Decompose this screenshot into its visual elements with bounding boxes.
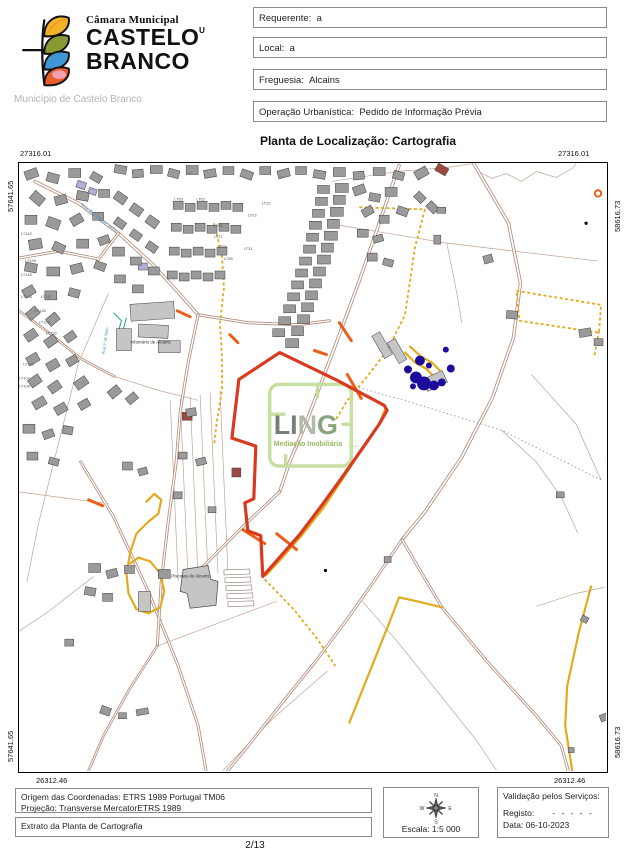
map-label: LT25 — [218, 244, 228, 249]
building — [158, 569, 170, 578]
building — [315, 197, 327, 205]
road — [19, 311, 115, 377]
coord-left-bottom: 57641.65 — [6, 731, 15, 762]
building — [286, 339, 299, 348]
building — [185, 203, 195, 211]
building — [145, 241, 159, 254]
coord-top-left: 27316.01 — [20, 149, 51, 158]
building — [556, 492, 564, 498]
building — [232, 468, 241, 477]
boundary-line — [531, 374, 601, 479]
building — [69, 213, 84, 227]
annotation-blob — [447, 365, 455, 373]
boundary-line — [502, 430, 579, 533]
building — [313, 170, 326, 180]
large-building — [180, 565, 218, 608]
building — [197, 201, 207, 209]
building — [129, 229, 143, 242]
orange-road-segment — [177, 311, 190, 317]
building — [84, 586, 96, 596]
map-label: LT22 — [262, 200, 271, 205]
map-label: LT63 — [174, 196, 184, 201]
ling-watermark: LINGMediação Imobiliária — [270, 384, 359, 466]
map-label: LT27 — [214, 234, 223, 239]
building — [599, 712, 606, 722]
building — [483, 254, 494, 264]
building — [324, 231, 337, 240]
map-svg: LINGMediação ImobiliáriaRua do Chafariz … — [19, 163, 606, 771]
building — [300, 257, 312, 265]
building — [284, 305, 296, 313]
building — [193, 247, 203, 255]
map-label: LT146 — [21, 294, 33, 299]
building — [89, 564, 101, 573]
building — [353, 171, 365, 180]
map-label: LT126 — [39, 320, 51, 325]
lot-strip — [228, 601, 254, 607]
data-line: Data: 06-10-2023 — [503, 820, 603, 831]
coord-right-top: 58616.73 — [613, 201, 622, 232]
coord-top-right: 27316.01 — [558, 149, 589, 158]
compass-scale-box: N S E W Escala: 1:5 000 — [383, 787, 479, 838]
yellow-road — [349, 597, 442, 722]
building — [327, 219, 339, 228]
annotation-blob — [429, 380, 439, 390]
field-operacao-value: Pedido de Informação Prévia — [359, 107, 482, 118]
svg-text:E: E — [448, 806, 452, 812]
building — [240, 169, 254, 181]
building — [385, 187, 397, 196]
org-title-line1: CASTELOᵁ — [86, 26, 205, 49]
building — [24, 168, 39, 181]
municipality-subtitle: Município de Castelo Branco — [14, 94, 142, 105]
building — [369, 193, 381, 203]
coord-bottom-right: 26312.46 — [554, 776, 585, 785]
map-label: LT152 — [21, 231, 32, 236]
validation-box: Validação pelos Serviços: Registo:- - - … — [497, 787, 609, 838]
annotation-blob — [438, 378, 446, 386]
building — [23, 328, 38, 342]
building — [117, 329, 132, 351]
road-core — [402, 540, 568, 771]
building — [231, 225, 241, 233]
building — [195, 223, 205, 231]
map-dot — [585, 222, 588, 225]
building — [384, 557, 391, 563]
orange-marker — [595, 190, 601, 196]
map-label: LT149 — [25, 258, 37, 263]
building — [379, 215, 389, 223]
building — [65, 639, 74, 646]
field-freguesia-value: Alcains — [309, 75, 340, 86]
page-title: Planta de Localização: Cartografia — [0, 134, 626, 148]
field-freguesia[interactable]: Freguesia: Alcains — [253, 69, 607, 90]
building — [114, 165, 127, 175]
building — [333, 195, 345, 204]
building — [302, 303, 314, 312]
road-core — [81, 462, 206, 770]
building — [333, 168, 345, 177]
building — [335, 183, 348, 192]
building — [298, 315, 310, 324]
building — [29, 190, 45, 206]
building — [313, 267, 325, 276]
map-label: Infantário de Alcains — [130, 340, 171, 345]
building — [273, 329, 285, 337]
building — [138, 324, 168, 338]
annotation-blob — [443, 347, 449, 353]
building — [130, 257, 141, 265]
annotation-blob — [410, 383, 416, 389]
map-label: LT35 — [224, 256, 234, 261]
boundary-line — [157, 601, 276, 646]
building — [129, 203, 144, 217]
building — [169, 247, 179, 255]
building — [195, 457, 206, 466]
building — [138, 467, 148, 476]
road-core — [402, 164, 520, 540]
field-local[interactable]: Local: a — [253, 37, 607, 58]
building — [77, 398, 90, 410]
map-label: LT23 — [248, 212, 258, 217]
building — [568, 748, 574, 753]
building — [173, 492, 182, 499]
building — [27, 452, 38, 460]
building — [132, 169, 144, 178]
building — [367, 253, 377, 261]
road — [402, 540, 568, 771]
field-local-value: a — [290, 43, 295, 54]
building — [113, 191, 128, 205]
building — [186, 407, 197, 417]
building — [178, 452, 187, 459]
building — [307, 233, 319, 241]
map-canvas[interactable]: LINGMediação ImobiliáriaRua do Chafariz … — [18, 162, 608, 773]
building — [69, 169, 81, 178]
validation-title: Validação pelos Serviços: — [503, 791, 603, 802]
building — [414, 191, 427, 204]
yellow-road — [565, 586, 591, 770]
building — [54, 194, 68, 206]
map-label: LT132 — [46, 331, 57, 336]
map-label: LT109 — [23, 362, 35, 367]
coord-left-top: 57641.65 — [6, 181, 15, 212]
building — [43, 334, 58, 348]
extract-box: Extrato da Planta de Cartografia — [15, 817, 372, 837]
building — [89, 171, 102, 183]
building — [103, 593, 113, 601]
map-label: LT31 — [244, 246, 254, 251]
building — [173, 201, 183, 209]
map-label: Rua do Chafariz Velho — [80, 202, 119, 234]
boundary-line — [190, 396, 198, 577]
yellow-dashed-track — [265, 579, 336, 666]
building — [594, 339, 603, 346]
building — [107, 385, 122, 400]
orange-road-segment — [314, 351, 326, 355]
page-number: 2/13 — [0, 840, 510, 851]
building — [70, 263, 84, 275]
building — [317, 185, 329, 193]
data-value: 06-10-2023 — [526, 820, 569, 830]
building — [23, 424, 35, 433]
extract-label: Extrato da Planta de Cartografia — [21, 821, 142, 831]
building — [321, 243, 333, 252]
building — [506, 310, 518, 319]
building — [100, 705, 112, 716]
org-title-line2: BRANCO — [86, 50, 190, 73]
boundary-line — [447, 243, 462, 323]
building — [208, 507, 216, 513]
building — [414, 166, 430, 180]
building — [113, 247, 125, 256]
building — [579, 328, 592, 338]
map-label: LT150 — [21, 272, 33, 277]
building — [148, 267, 159, 275]
building — [296, 269, 308, 277]
building — [42, 429, 55, 440]
compass-rose-icon: N S E W — [389, 791, 483, 825]
building — [279, 317, 291, 325]
boundary-line — [536, 587, 604, 606]
building — [138, 591, 150, 611]
building — [310, 221, 322, 229]
building — [132, 285, 143, 293]
building — [292, 281, 304, 289]
building — [46, 216, 62, 230]
building — [435, 163, 449, 176]
shield-icon: ᵁ — [199, 25, 205, 39]
svg-text:LING: LING — [274, 410, 338, 440]
map-label: 77 — [280, 175, 284, 179]
building — [48, 457, 59, 466]
building — [47, 267, 60, 276]
building — [77, 239, 89, 248]
road — [81, 462, 206, 770]
building — [310, 279, 322, 288]
scale-label: Escala: 1:5 000 — [384, 824, 478, 835]
registo-value: - - - - - — [552, 808, 594, 818]
building — [203, 273, 213, 281]
building — [434, 235, 441, 244]
building — [118, 713, 126, 719]
projection-line: Projeção: Transverse MercatorETRS 1989 — [21, 803, 366, 814]
building — [317, 255, 330, 264]
building — [396, 206, 409, 217]
building — [88, 187, 98, 195]
coords-origin-line: Origem das Coordenadas: ETRS 1989 Portug… — [21, 792, 366, 803]
building — [437, 207, 446, 213]
map-label: Rua 1º de Maio — [101, 326, 110, 354]
building — [94, 260, 107, 271]
building — [233, 203, 243, 211]
annotation-blob — [426, 363, 432, 369]
building — [203, 169, 216, 179]
building — [330, 207, 343, 216]
map-label: LT34 — [214, 223, 224, 228]
map-label: 42 — [188, 171, 192, 175]
coords-origin-box: Origem das Coordenadas: ETRS 1989 Portug… — [15, 788, 372, 813]
field-requerente[interactable]: Requerente: a — [253, 7, 607, 28]
annotation-blob — [404, 366, 412, 374]
building — [221, 201, 231, 209]
building — [99, 189, 110, 197]
orange-road-segment — [230, 335, 238, 343]
building — [28, 238, 42, 250]
building — [150, 166, 162, 174]
municipality-logo: Câmara Municipal CASTELOᵁ BRANCO Municíp… — [14, 6, 254, 106]
building — [357, 229, 368, 237]
building — [167, 271, 177, 279]
lot-strip — [226, 585, 252, 591]
map-label: LT147 — [41, 294, 52, 299]
svg-text:W: W — [420, 806, 425, 812]
building — [183, 225, 193, 233]
building — [32, 396, 48, 410]
building — [260, 167, 271, 175]
building — [68, 288, 81, 299]
butterfly-logo-icon — [18, 8, 88, 94]
field-operacao[interactable]: Operação Urbanística: Pedido de Informaç… — [253, 101, 607, 122]
building — [215, 271, 225, 279]
boundary-line — [362, 601, 496, 770]
building — [47, 380, 62, 394]
building — [122, 462, 132, 470]
building — [63, 330, 77, 343]
map-dot — [324, 569, 327, 572]
building — [46, 172, 60, 184]
building — [76, 180, 87, 190]
annotation-blob — [417, 376, 431, 390]
building — [382, 258, 393, 267]
building — [124, 565, 134, 573]
boundary-line — [474, 164, 576, 182]
building — [73, 376, 89, 391]
building — [171, 223, 181, 231]
building — [45, 358, 60, 372]
map-label: LT140 — [35, 308, 47, 313]
building — [125, 392, 138, 405]
building — [62, 425, 73, 435]
map-label: LT106 — [19, 383, 31, 388]
field-requerente-value: a — [317, 13, 322, 24]
building — [352, 184, 366, 196]
map-label: Piscinas de Alcains — [171, 573, 210, 578]
building — [106, 568, 119, 579]
building — [181, 249, 191, 257]
building — [191, 271, 201, 279]
boundary-line — [19, 576, 94, 631]
building — [223, 167, 234, 175]
lot-strip — [225, 577, 251, 583]
building — [145, 215, 160, 229]
building — [167, 168, 180, 179]
yellow-dashed-track — [214, 223, 224, 445]
svg-text:Mediação Imobiliária: Mediação Imobiliária — [274, 441, 343, 448]
lot-strip — [227, 593, 253, 599]
lot-strip — [224, 569, 250, 575]
building — [179, 273, 189, 281]
map-label: LT107 — [19, 375, 30, 380]
yellow-dashed-track — [516, 291, 601, 333]
building — [313, 209, 325, 217]
building — [292, 327, 304, 336]
building — [25, 215, 37, 224]
coord-bottom-left: 26312.46 — [36, 776, 67, 785]
building — [288, 293, 300, 301]
building — [306, 291, 318, 300]
coord-right-bottom: 58616.73 — [613, 727, 622, 758]
building — [304, 245, 316, 253]
building — [76, 190, 89, 201]
boundary-line — [200, 394, 208, 575]
building — [136, 708, 149, 716]
building — [205, 249, 215, 257]
boundary-line — [180, 398, 188, 579]
building — [130, 301, 175, 321]
building — [115, 275, 126, 283]
annotation-blob — [415, 356, 425, 366]
registo-line: Registo:- - - - - — [503, 808, 603, 819]
building — [296, 167, 307, 175]
building — [209, 203, 219, 211]
building — [373, 168, 385, 176]
map-label: LT62 — [196, 196, 205, 201]
road — [402, 164, 520, 540]
